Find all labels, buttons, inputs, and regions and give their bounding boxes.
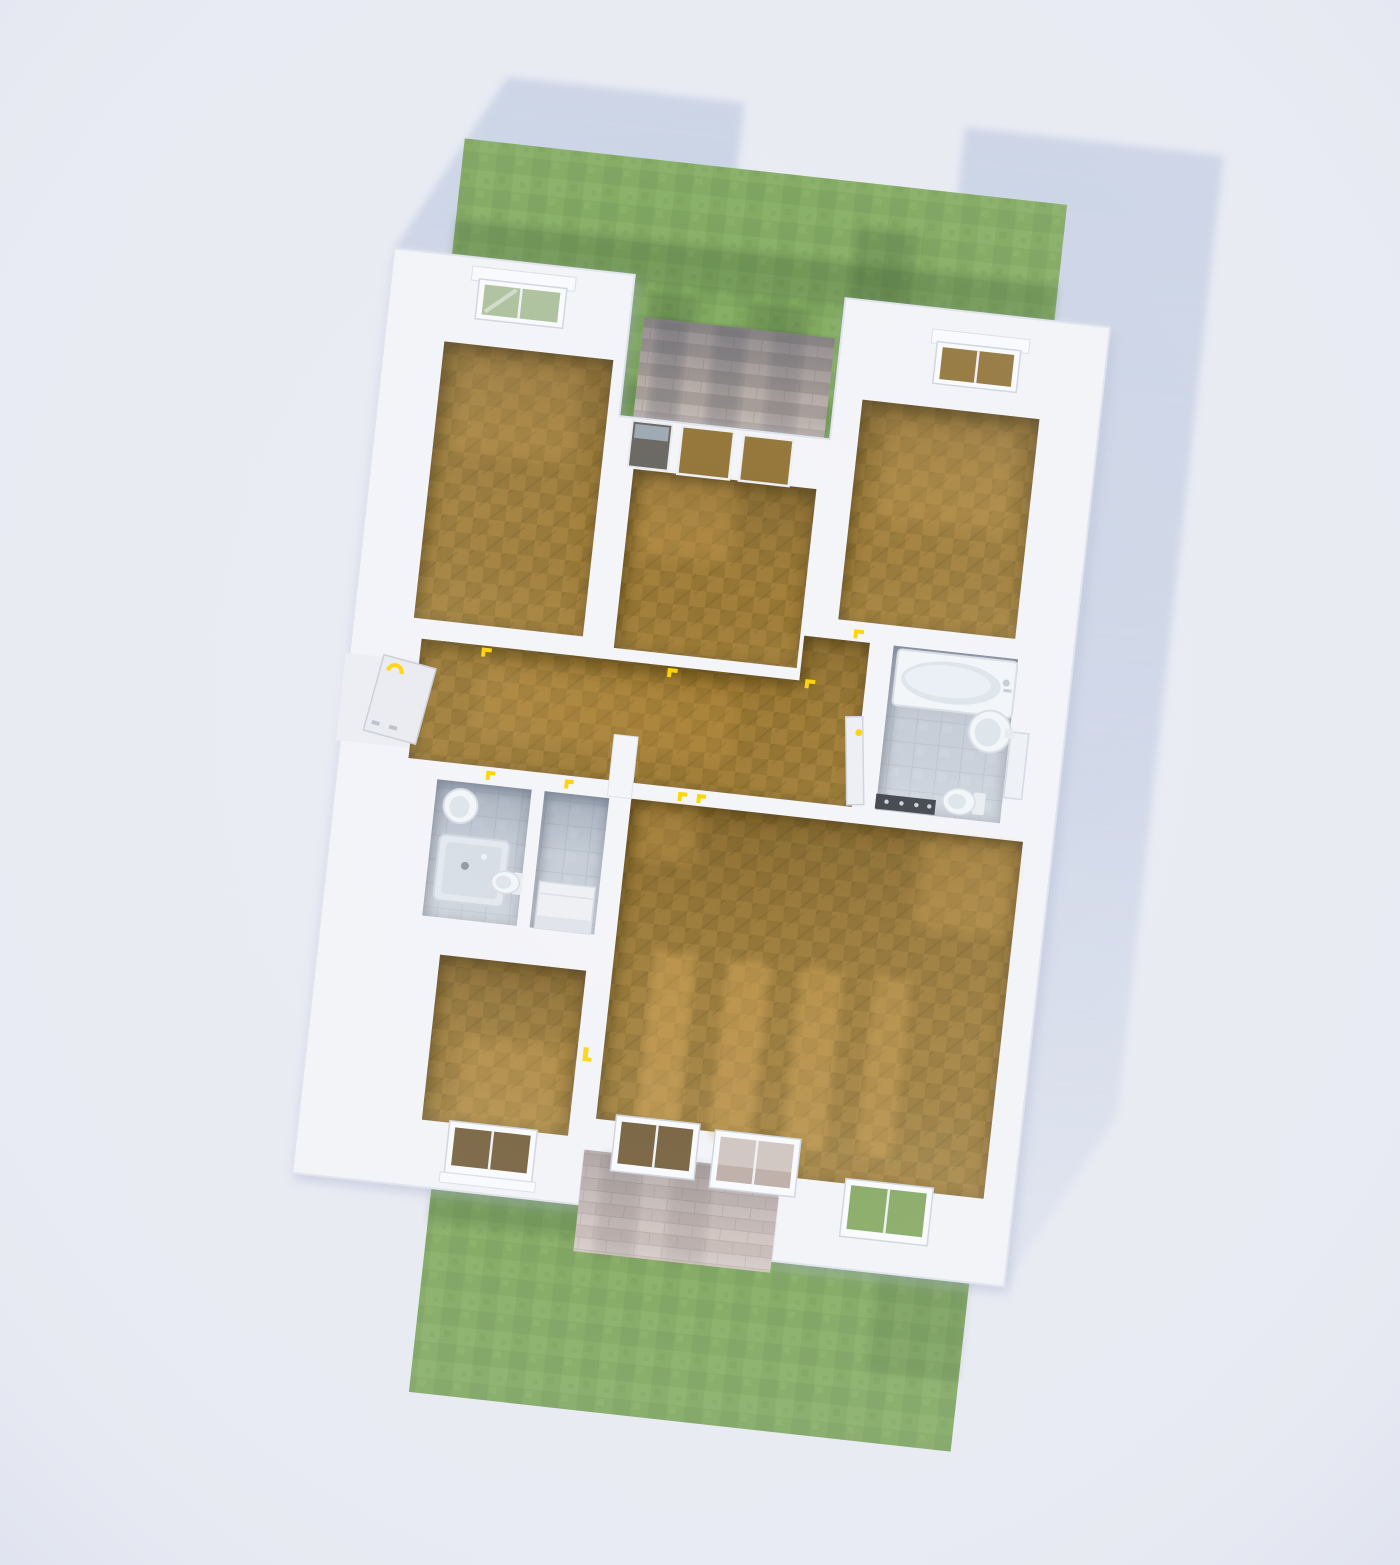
floor-plan-canvas — [0, 0, 1400, 1565]
vignette-overlay — [0, 0, 1400, 1565]
floor-plan-stage — [0, 0, 1400, 1565]
